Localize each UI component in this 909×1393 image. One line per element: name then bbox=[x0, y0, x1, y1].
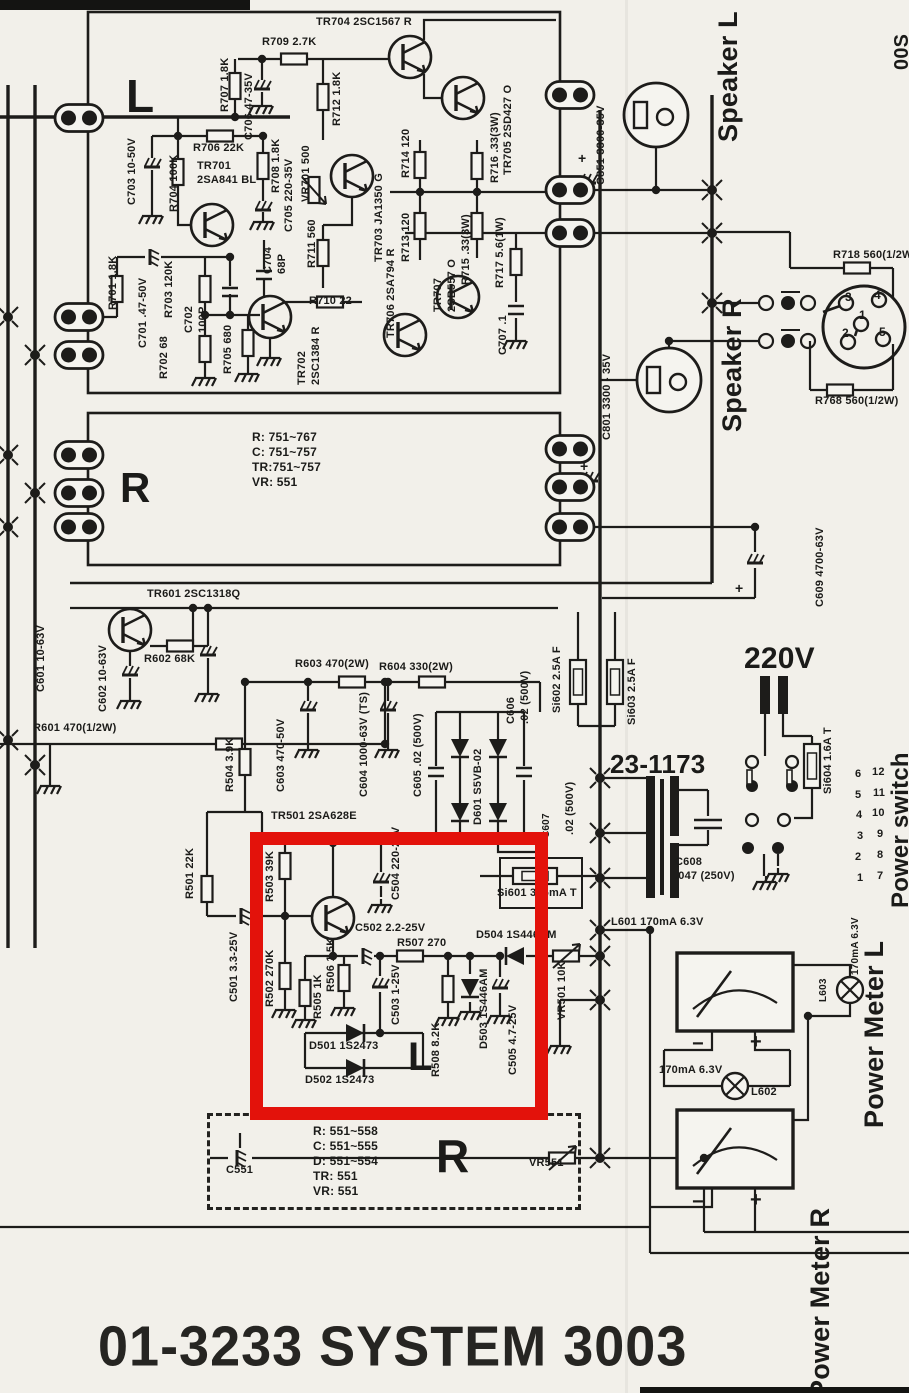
vr501-symbol bbox=[553, 944, 580, 968]
tr705-symbol bbox=[442, 77, 484, 119]
vr701-symbol bbox=[302, 177, 326, 204]
power-switch-contacts bbox=[742, 756, 798, 854]
tr706-symbol bbox=[384, 314, 426, 356]
tr702-symbol bbox=[249, 296, 291, 338]
din-connector bbox=[823, 286, 905, 368]
phone-jack-1 bbox=[759, 292, 815, 310]
scan-artifact-bottom bbox=[640, 1387, 909, 1393]
tr707-symbol bbox=[437, 276, 479, 318]
speaker-r-jack bbox=[637, 348, 701, 412]
power-meter-r-symbol bbox=[677, 1110, 793, 1188]
speaker-l-jack bbox=[624, 83, 688, 147]
scan-artifact-top bbox=[0, 0, 250, 10]
mains-plug bbox=[760, 676, 788, 714]
sheet-title: 01-3233 SYSTEM 3003 bbox=[98, 1315, 687, 1379]
highlight-box bbox=[250, 832, 548, 1120]
si604-fuse bbox=[804, 744, 820, 788]
power-meter-l-symbol bbox=[677, 953, 793, 1031]
si603-fuse bbox=[607, 660, 623, 704]
tr703-symbol bbox=[331, 155, 373, 197]
si602-fuse bbox=[570, 660, 586, 704]
schematic-page: TR704 2SC1567 RR709 2.7KR706 22KTR701 2S… bbox=[0, 0, 909, 1393]
phone-jack-2 bbox=[759, 330, 815, 348]
lamp-l603 bbox=[837, 977, 863, 1003]
tr601-symbol bbox=[109, 609, 151, 651]
tr701-symbol bbox=[191, 204, 233, 246]
r-channel-regulator-dashed-box bbox=[207, 1113, 581, 1210]
power-transformer bbox=[646, 776, 679, 898]
paper-crease bbox=[625, 0, 628, 1393]
right-channel-amp-box bbox=[88, 413, 560, 565]
tr704-symbol bbox=[389, 36, 431, 78]
lamp-l602 bbox=[722, 1073, 748, 1099]
